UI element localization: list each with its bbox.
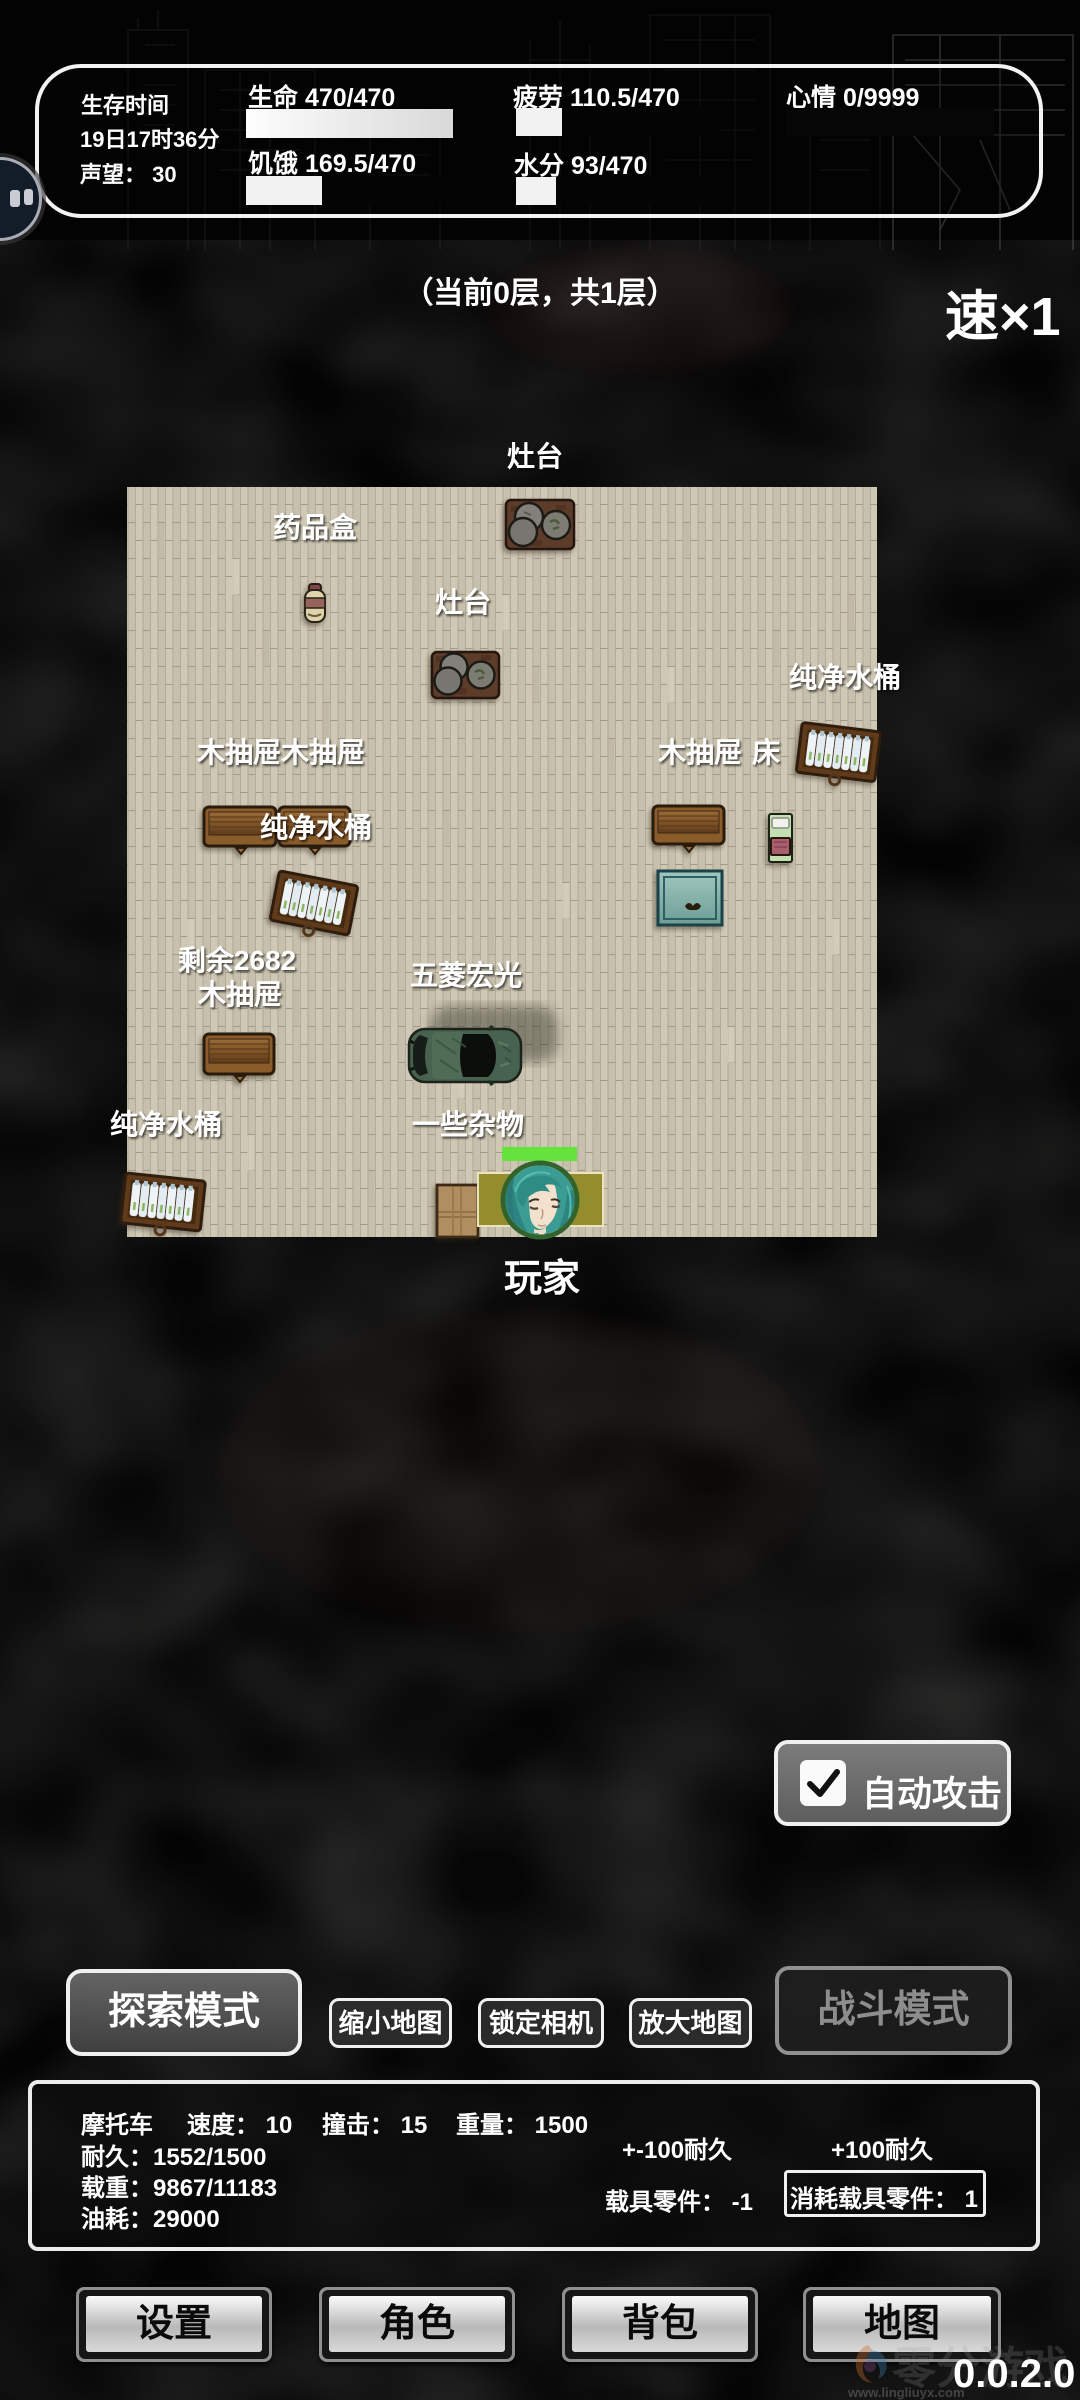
svg-text:玩家: 玩家 (504, 1258, 580, 1300)
svg-text:灶台: 灶台 (507, 440, 563, 472)
svg-text:一些杂物: 一些杂物 (412, 1109, 524, 1140)
svg-text:木抽屉: 木抽屉 (197, 979, 282, 1010)
svg-text:剩余2682: 剩余2682 (178, 944, 296, 976)
svg-text:木抽屉木抽屉: 木抽屉木抽屉 (196, 737, 365, 768)
svg-text:纯净水桶: 纯净水桶 (110, 1109, 222, 1140)
svg-text:纯净水桶: 纯净水桶 (260, 812, 372, 843)
svg-text:灶台: 灶台 (435, 586, 491, 618)
svg-text:床: 床 (752, 736, 780, 768)
svg-text:五菱宏光: 五菱宏光 (410, 959, 522, 991)
svg-text:木抽屉: 木抽屉 (657, 737, 742, 768)
svg-text:纯净水桶: 纯净水桶 (789, 662, 901, 693)
svg-text:药品盒: 药品盒 (273, 511, 358, 543)
svg-text:www.lingliuyx.com: www.lingliuyx.com (847, 2385, 965, 2400)
